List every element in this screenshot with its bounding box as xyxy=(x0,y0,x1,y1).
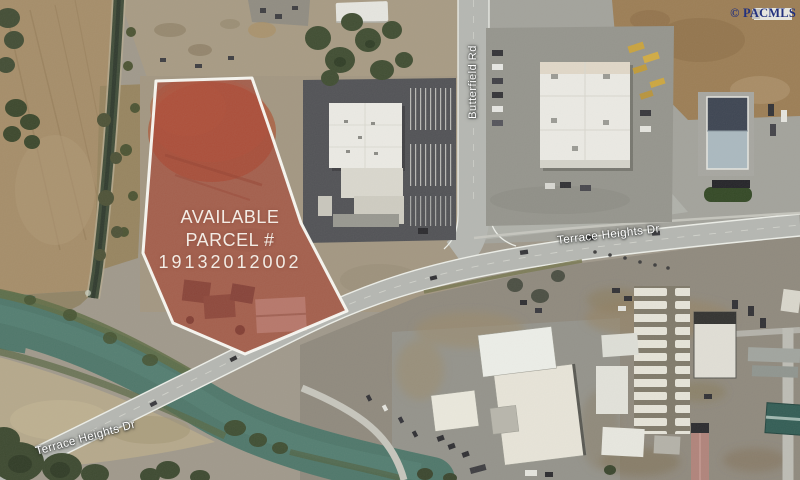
parcel-label-line1: AVAILABLE xyxy=(140,206,320,229)
parcel-label: AVAILABLE PARCEL # 19132012002 xyxy=(140,206,320,274)
pacmls-watermark: © PACMLS xyxy=(730,6,796,21)
aerial-map[interactable]: AVAILABLE PARCEL # 19132012002 Terrace H… xyxy=(0,0,800,480)
road-label-butterfield-rd: Butterfield Rd xyxy=(467,36,479,128)
parcel-label-line2: PARCEL # xyxy=(140,229,320,252)
parcel-label-line3: 19132012002 xyxy=(140,251,320,274)
photo-grain xyxy=(0,0,800,480)
satellite-imagery xyxy=(0,0,800,480)
